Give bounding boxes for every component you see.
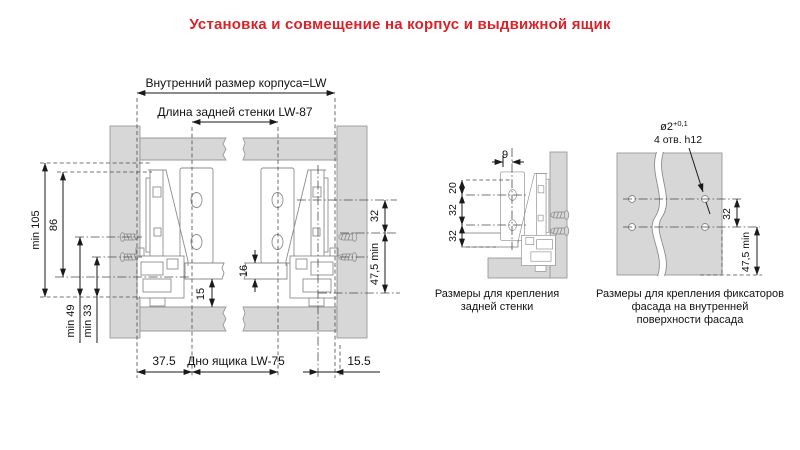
dim-20-label: 20 xyxy=(447,182,459,194)
dim-32-label: 32 xyxy=(721,208,733,220)
dim-375-label: 37.5 xyxy=(152,354,176,368)
dim-32-label: 32 xyxy=(447,230,459,242)
drawer-side-assembly xyxy=(501,172,556,271)
dim-drawer-bottom-label: Дно ящика LW-75 xyxy=(187,354,285,368)
cabinet-side-panel-left xyxy=(110,126,140,338)
dim-86-label: 86 xyxy=(48,219,60,231)
back-wall-mounting-diagram: 9 20 32 32 Размеры для крепления задней … xyxy=(435,148,569,313)
caption-back-wall-line1: Размеры для крепления xyxy=(435,288,559,300)
dim-16-label: 16 xyxy=(238,265,250,277)
caption-facade-line3: поверхности фасада xyxy=(637,314,745,326)
main-assembly-diagram: Внутренний размер корпуса=LW Длина задне… xyxy=(30,76,400,378)
caption-back-wall-line2: задней стенки xyxy=(461,301,534,313)
drawer-bottom-panel xyxy=(185,263,287,279)
hole-diameter-label: ø2+0,1 xyxy=(660,119,688,133)
bottom-rail-bar xyxy=(140,307,337,331)
caption-facade-line2: фасада на внутренней xyxy=(632,301,749,313)
dim-15-label: 15 xyxy=(195,288,207,300)
dim-32-label: 32 xyxy=(369,210,381,222)
installation-drawing-page: { "title": "Установка и совмещение на ко… xyxy=(0,0,800,450)
cabinet-side-panel-right xyxy=(337,126,367,338)
dim-min105-label: min 105 xyxy=(30,210,42,249)
dim-475min-label: 47,5 min xyxy=(740,232,752,272)
dim-155-label: 15.5 xyxy=(347,354,371,368)
drawer-side-assembly-right xyxy=(261,168,338,306)
holes-note-label: 4 отв. h12 xyxy=(654,134,702,146)
back-wall-bar xyxy=(140,138,337,160)
drawer-side-assembly-left xyxy=(136,168,213,306)
dim-back-wall-length-label: Длина задней стенки LW-87 xyxy=(157,105,312,119)
technical-drawing-canvas: Внутренний размер корпуса=LW Длина задне… xyxy=(0,0,800,450)
dim-min49-label: min 49 xyxy=(65,304,77,337)
dim-32-label: 32 xyxy=(447,204,459,216)
dim-9-label: 9 xyxy=(502,149,508,161)
caption-facade-line1: Размеры для крепления фиксаторов xyxy=(596,288,784,300)
dim-inner-width-label: Внутренний размер корпуса=LW xyxy=(145,76,327,90)
facade-fixing-diagram: ø2+0,1 4 отв. h12 32 47,5 min Размеры дл… xyxy=(596,119,784,326)
dim-475min-label: 47,5 min xyxy=(369,243,381,285)
dim-min33-label: min 33 xyxy=(82,304,94,337)
facade-panel xyxy=(617,153,722,275)
